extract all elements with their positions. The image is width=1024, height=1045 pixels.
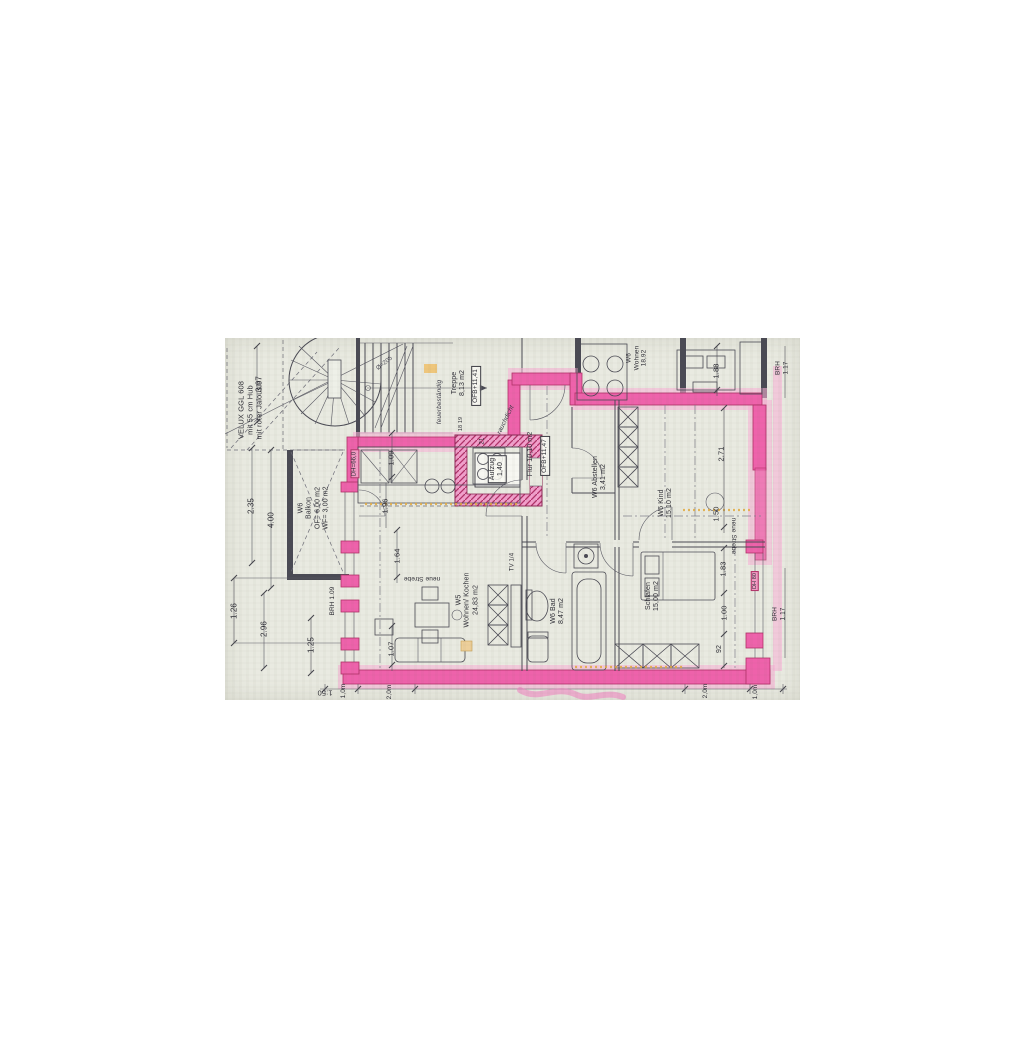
label-scalebar-2-0m-right: 2,0m <box>702 684 710 699</box>
label-dim-3-97: 3.97 <box>254 376 263 392</box>
screenshot-canvas: { "document": { "type": "scanned floor p… <box>0 0 1024 1045</box>
label-dim-1-26: 1.26 <box>229 603 238 619</box>
stair-flight <box>356 338 487 437</box>
label-brh-1-09: BRH 1.09 <box>329 587 337 616</box>
partitions <box>359 385 765 671</box>
label-treppe-ofb: OFB+11,41 <box>471 366 481 406</box>
label-note-dh-80: DH 80 <box>751 571 759 591</box>
label-brh-1-17-top: BRH 1.17 <box>774 359 789 377</box>
label-dim-2-71: 2.71 <box>718 447 727 462</box>
label-room-wohnen-w6: W6 Wohnen 18,92 <box>626 346 649 371</box>
label-nums-18-19: 18 19 <box>458 417 464 431</box>
label-note-dh-66: DH=66,0 <box>350 450 359 479</box>
label-dim-1-00: 1.00 <box>721 606 730 621</box>
label-note-tv: TV 1/4 <box>509 553 516 571</box>
label-scale-note: 1:50 <box>318 688 333 697</box>
label-dim-1-25: 1.25 <box>306 637 315 653</box>
label-dim-1-07: 1.07 <box>388 642 397 657</box>
axis-lines <box>380 386 761 668</box>
label-dim-1-50: 1.50 <box>713 507 722 522</box>
label-dim-92: 92 <box>716 645 724 653</box>
label-note-neue-strebe-2: neue Strebe <box>729 518 737 555</box>
label-dim-1-88: 1.88 <box>713 364 722 379</box>
label-room-balkon: W6 Balkon OF= 6,00 m2 WF= 3,00 m2 <box>298 486 331 529</box>
label-scalebar-1-0m-right: 1,0m <box>752 685 760 700</box>
floorplan-paper: VELUX GGL 608 mit 55 cm Hub mit roter Ja… <box>225 338 800 700</box>
label-flur-ofb: OFB+11,47 <box>540 436 550 476</box>
label-room-flur: Flur 10,10 m2 <box>527 432 535 477</box>
label-scalebar-2-0m-left: 2,0m <box>386 685 394 700</box>
label-room-kind: W6 Kind 15,10 m2 <box>658 488 675 518</box>
label-dim-2-96: 2.96 <box>259 621 268 637</box>
label-dim-1-83: 1.83 <box>720 562 729 577</box>
label-num-21: 21 <box>479 438 486 445</box>
label-label-aufzug: Aufzug 1,40 <box>488 455 507 483</box>
label-room-bad: W6 Bad 8,47 m2 <box>550 598 567 624</box>
label-room-abstellen: W6 Abstellen 3,41 m2 <box>592 456 609 498</box>
label-dim-1-09: 1.09 <box>388 451 397 466</box>
label-dim-1-96: 1.96 <box>382 499 391 514</box>
label-scalebar-1-0m-left: 1,0m <box>340 684 348 699</box>
pink-marker-scribble <box>520 690 623 697</box>
label-dim-4-00: 4.00 <box>266 512 275 528</box>
label-room-wohnen-kochen: W5 Wohnen/ Kochen 24,83 m2 <box>456 573 481 628</box>
label-dim-1-64: 1.64 <box>394 549 403 564</box>
label-room-treppe: Treppe 8,13 m2 <box>451 370 468 396</box>
label-note-feuerbestaendig: feuerbeständig <box>436 380 444 424</box>
label-note-neue-strebe-1: neue Strebe <box>404 574 441 582</box>
spiral-staircase <box>289 338 381 426</box>
label-brh-1-17-low: BRH 1.17 <box>771 604 786 625</box>
label-room-schlafen: Schlafen 15,00 m2 <box>645 581 662 611</box>
label-dim-2-35: 2.35 <box>246 498 255 514</box>
